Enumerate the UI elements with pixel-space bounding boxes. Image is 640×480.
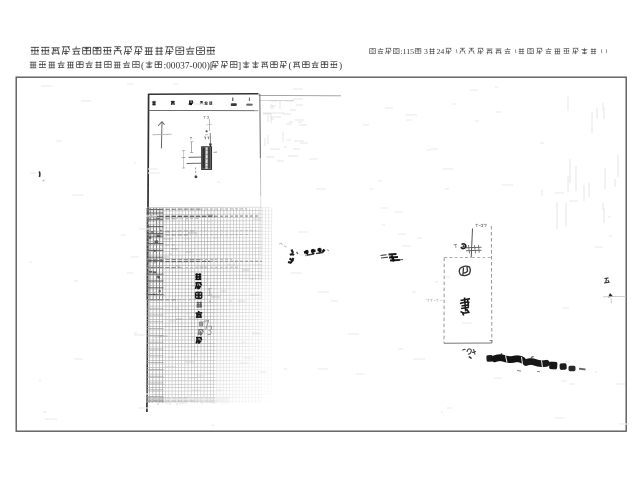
svg-text:(: ( — [141, 60, 144, 71]
svg-text:3: 3 — [424, 47, 428, 56]
svg-text::115: :115 — [401, 47, 415, 56]
svg-text:24: 24 — [437, 47, 445, 56]
svg-text:(: ( — [289, 60, 292, 71]
svg-text::00037-000)[: :00037-000)[ — [164, 60, 213, 71]
svg-text:): ) — [339, 60, 342, 71]
svg-text:]: ] — [238, 61, 241, 71]
